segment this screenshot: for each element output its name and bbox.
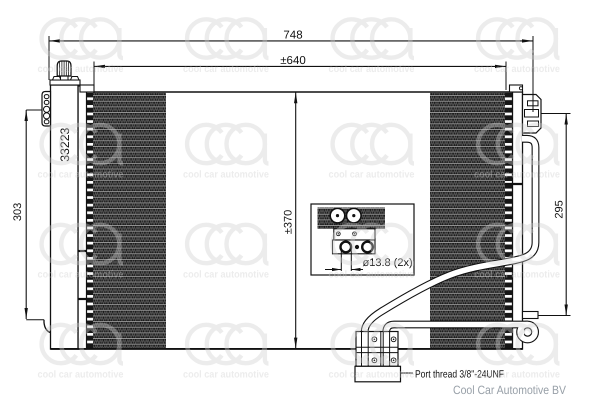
svg-text:cool car automotive: cool car automotive	[474, 64, 560, 75]
svg-text:295: 295	[554, 200, 566, 218]
svg-text:cool car automotive: cool car automotive	[38, 370, 124, 381]
svg-text:748: 748	[283, 30, 302, 42]
svg-text:cool car automotive: cool car automotive	[183, 64, 269, 75]
svg-text:cool car automotive: cool car automotive	[329, 270, 415, 281]
svg-text:Cool Car Automotive BV: Cool Car Automotive BV	[453, 383, 566, 397]
svg-text:303: 303	[12, 203, 24, 221]
svg-text:cool car automotive: cool car automotive	[183, 270, 269, 281]
svg-text:cool car automotive: cool car automotive	[183, 370, 269, 381]
svg-text:cool car automotive: cool car automotive	[329, 370, 415, 381]
svg-text:cool car automotive: cool car automotive	[474, 170, 560, 181]
svg-text:cool car automotive: cool car automotive	[38, 170, 124, 181]
svg-text:cool car automotive: cool car automotive	[183, 170, 269, 181]
svg-text:cool car automotive: cool car automotive	[329, 64, 415, 75]
svg-text:±640: ±640	[280, 55, 306, 67]
svg-text:cool car automotive: cool car automotive	[474, 370, 560, 381]
svg-text:±370: ±370	[282, 210, 294, 234]
svg-text:cool car automotive: cool car automotive	[38, 64, 124, 75]
svg-text:cool car automotive: cool car automotive	[329, 170, 415, 181]
svg-text:cool car automotive: cool car automotive	[474, 270, 560, 281]
svg-text:cool car automotive: cool car automotive	[38, 270, 124, 281]
